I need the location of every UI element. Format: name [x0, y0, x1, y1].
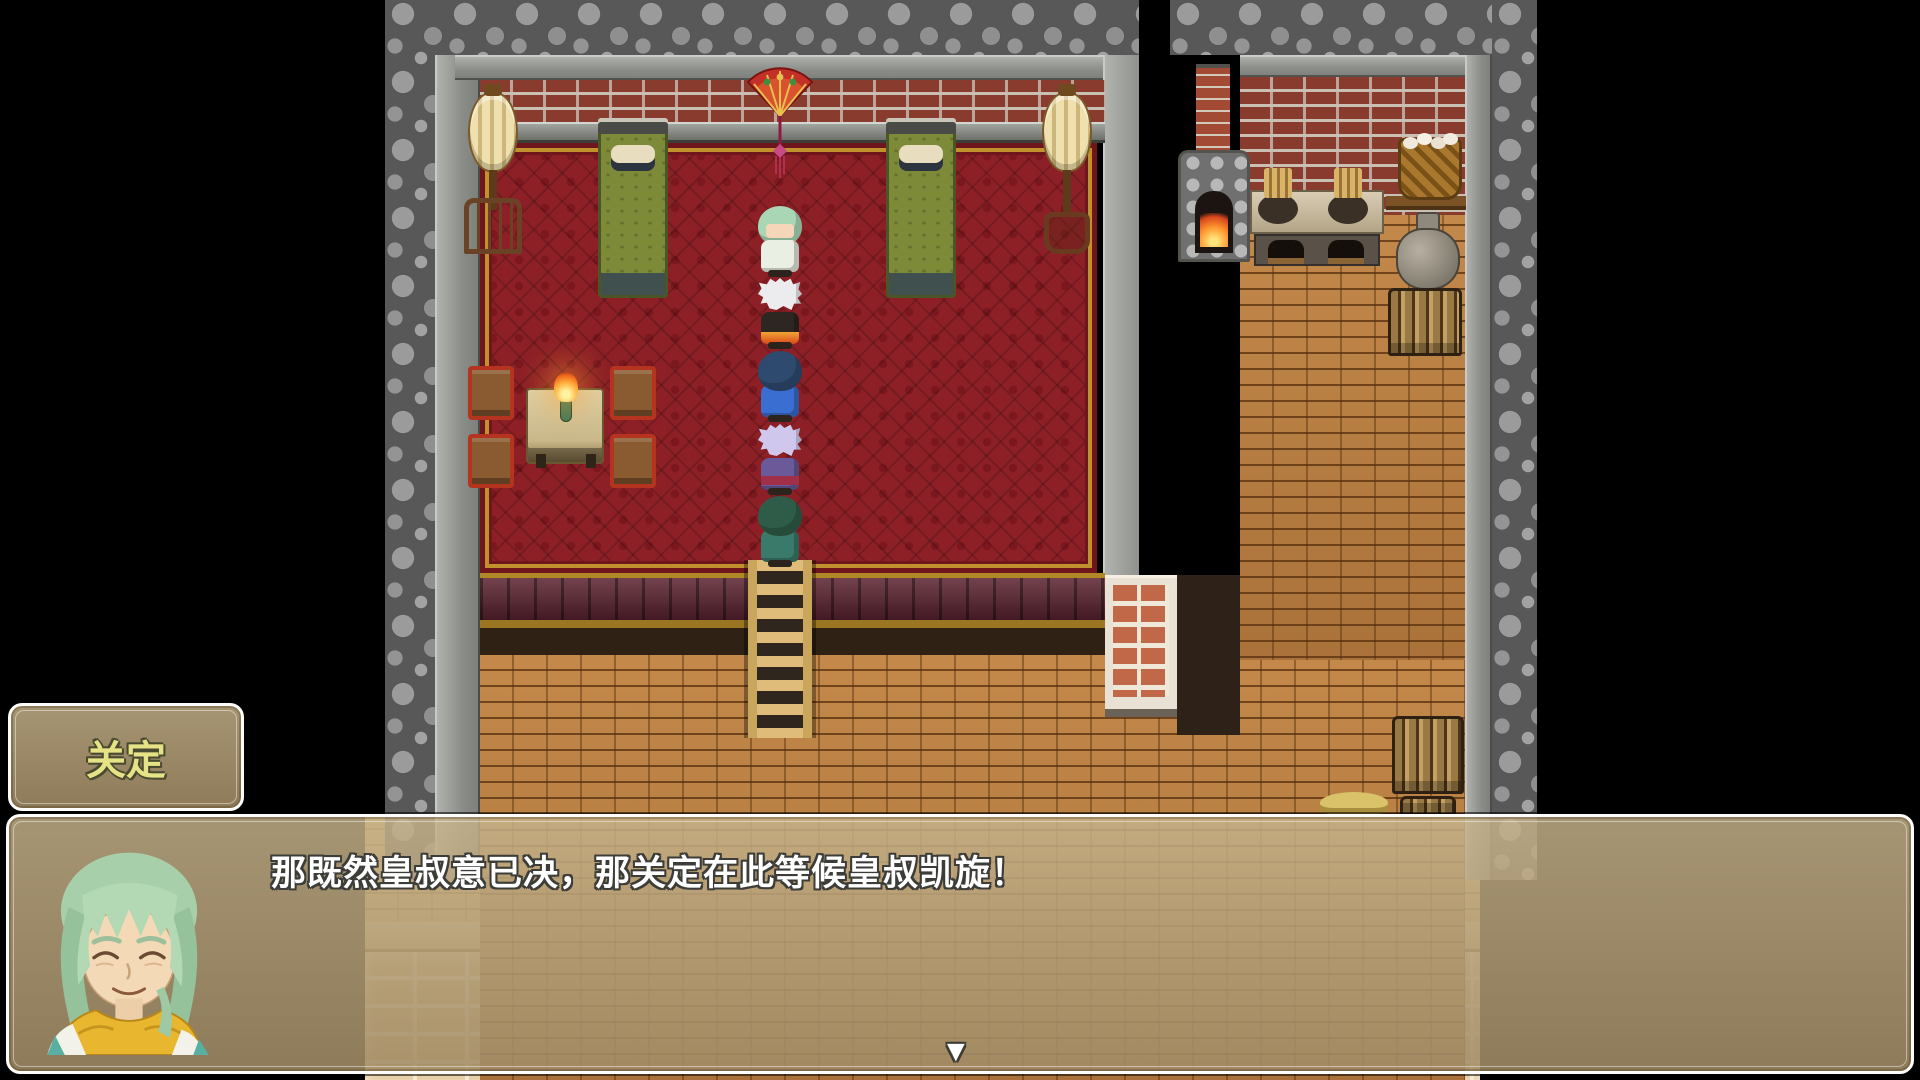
stone-furnace: [1178, 150, 1250, 262]
speaker-portrait: [37, 839, 221, 1055]
bed-left: [598, 118, 668, 298]
cooking-stove: [1250, 168, 1384, 266]
stone-band-right: [1465, 55, 1492, 880]
cobble-wall-top-left-room: [385, 0, 1139, 55]
bed-right: [886, 118, 956, 298]
stone-band-top-kitchen: [1240, 55, 1465, 77]
character-dark-green[interactable]: [756, 496, 804, 568]
name-box-text: 关定: [11, 706, 241, 808]
paper-lantern-right: [1042, 92, 1092, 172]
character-lavender-spiky[interactable]: [756, 424, 804, 496]
character-green-hair[interactable]: [756, 206, 804, 278]
stand-feet-right: [1044, 212, 1090, 254]
torch-on-table: [552, 372, 580, 424]
character-white-spiky[interactable]: [756, 278, 804, 350]
cobble-wall-top-kitchen: [1170, 0, 1537, 55]
continue-indicator[interactable]: ▼: [941, 1035, 971, 1069]
chair: [610, 434, 656, 488]
hanging-fan: [740, 60, 820, 180]
cobble-wall-left: [385, 0, 435, 880]
name-box: 关定: [8, 703, 244, 811]
divider-gap: [1139, 0, 1170, 575]
message-window[interactable]: 那既然皇叔意已决，那关定在此等候皇叔凯旋！ ▼: [6, 814, 1914, 1074]
chair: [468, 366, 514, 420]
firewood-pile-floor-2: [1400, 796, 1456, 816]
grain-sack: [1396, 212, 1460, 290]
ladder-down: [748, 560, 812, 738]
plaster-brick-pillar: [1105, 575, 1177, 717]
birdcage-stand-left: [464, 198, 522, 254]
basket-of-eggs: [1398, 138, 1462, 200]
game-screen: 关定: [0, 0, 1920, 1080]
chair: [468, 434, 514, 488]
straw-pile: [1320, 792, 1388, 814]
firewood-pile-kitchen: [1388, 288, 1462, 356]
lantern-cap-right: [1058, 84, 1076, 96]
lantern-stand-right: [1063, 170, 1071, 214]
brick-chimney: [1196, 64, 1230, 162]
paper-lantern-left: [468, 92, 518, 172]
message-text: 那既然皇叔意已决，那关定在此等候皇叔凯旋！: [271, 849, 1871, 899]
firewood-pile-floor: [1392, 716, 1464, 794]
cobble-wall-right: [1492, 0, 1537, 880]
character-navy-hair[interactable]: [756, 351, 804, 423]
lantern-cap-left: [484, 84, 502, 96]
chair: [610, 366, 656, 420]
pillar-shadow-strip: [1177, 575, 1240, 735]
